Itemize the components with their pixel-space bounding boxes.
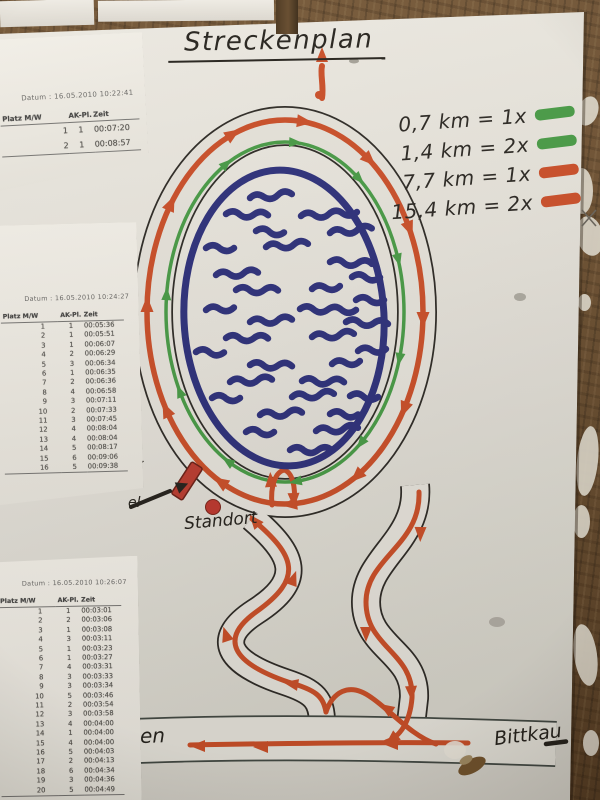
results-rows: 1 1 00:03:01 2 2 00:03:06 3 1 00:03:08 4… [0,605,125,796]
sheet-datum: Datum : 16.05.2010 10:24:27 [24,292,138,303]
results-rows: 1 1 00:07:20 2 1 00:08:57 [1,119,141,158]
pencil-x-mark [582,210,596,226]
results-table: Platz M/W AK-Pl. Zeit 1 1 00:07:20 2 1 0… [0,107,141,158]
map-title: Streckenplan [168,24,386,63]
legend-swatch [534,105,575,121]
table-row: 20 5 00:04:49 [1,784,124,796]
paper-corner [0,0,94,27]
smudge [489,617,505,627]
result-sheet-3: Datum : 16.05.2010 10:26:07 Platz M/W AK… [0,556,143,800]
smudge [514,293,526,301]
sheet-datum: Datum : 16.05.2010 10:22:41 [21,88,145,102]
table-row: 16 5 00:09:38 [5,461,128,474]
legend-swatch [536,134,577,150]
legend: 0,7 km = 1x 1,4 km = 2x 7,7 km = 1x 15,4… [378,97,582,226]
column-header-zeit: Zeit [81,595,121,606]
top-arrow-blob [315,91,323,99]
legend-swatch [538,163,579,179]
column-header-akpl: AK-Pl. [55,596,81,607]
legend-swatch [540,192,581,208]
results-rows: 1 1 00:05:36 2 1 00:05:51 3 1 00:06:07 4… [1,320,128,474]
result-sheet-2: Datum : 16.05.2010 10:24:27 Platz M/W AK… [0,222,144,506]
sheet-datum: Datum : 16.05.2010 10:26:07 [22,578,138,588]
paper-corner [98,0,274,22]
results-table: Platz M/W AK-Pl. Zeit 1 1 00:05:36 2 1 0… [1,309,128,474]
route-road-section [190,743,468,745]
white-blob [444,741,466,759]
column-header-akpl: AK-Pl. [58,310,84,321]
hidden-text-fragment: el [128,495,141,511]
pinboard-background: Streckenplan 0,7 km = 1x 1,4 km = 2x 7,7… [0,0,600,800]
photo-of-streckenplan: { "photo": { "board_color": "#6f4e2b", "… [0,0,600,800]
results-table: Platz M/W AK-Pl. Zeit 1 1 00:03:01 2 2 0… [0,595,125,797]
